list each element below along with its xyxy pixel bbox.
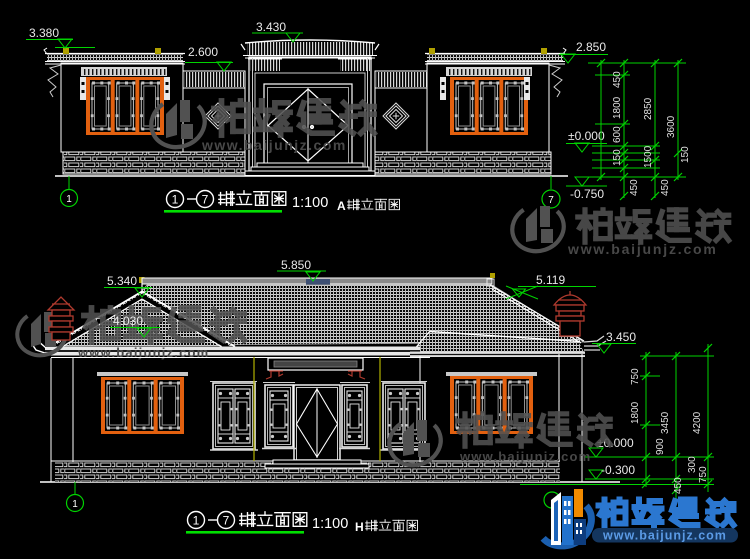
svg-text:7: 7	[223, 514, 230, 528]
svg-text:450: 450	[660, 179, 671, 196]
svg-text:900: 900	[655, 438, 666, 455]
svg-text:±0.000: ±0.000	[568, 129, 605, 143]
svg-text:1: 1	[66, 194, 72, 205]
svg-text:1500: 1500	[643, 145, 654, 168]
svg-text:150: 150	[612, 149, 623, 166]
svg-text:-0.300: -0.300	[601, 463, 635, 477]
svg-text:450: 450	[673, 477, 684, 494]
svg-text:4.030: 4.030	[113, 314, 143, 328]
svg-text:450: 450	[612, 71, 623, 88]
svg-text:600: 600	[612, 126, 623, 143]
svg-text:450: 450	[629, 179, 640, 196]
svg-text:7: 7	[202, 193, 209, 207]
svg-text:2.600: 2.600	[188, 45, 218, 59]
svg-text:2850: 2850	[643, 97, 654, 120]
svg-text:3.450: 3.450	[606, 330, 636, 344]
svg-text:www.baijunjz.com: www.baijunjz.com	[459, 449, 591, 464]
svg-text:www.baijunjz.com: www.baijunjz.com	[567, 241, 718, 257]
svg-text:5.119: 5.119	[536, 273, 565, 287]
svg-text:2.850: 2.850	[576, 40, 606, 54]
svg-text:1: 1	[172, 193, 179, 207]
svg-text:A: A	[337, 199, 346, 213]
svg-text:H: H	[355, 520, 364, 534]
svg-text:3450: 3450	[660, 411, 671, 434]
svg-text:4200: 4200	[692, 411, 703, 434]
svg-text:1800: 1800	[630, 401, 641, 424]
svg-text:5.850: 5.850	[281, 258, 311, 272]
svg-text:1:100: 1:100	[292, 195, 328, 211]
svg-text:300: 300	[687, 456, 698, 473]
svg-text:3.430: 3.430	[256, 20, 286, 34]
svg-text:150: 150	[680, 146, 691, 163]
svg-text:1: 1	[72, 499, 78, 510]
svg-text:7: 7	[548, 195, 554, 206]
svg-text:5.340: 5.340	[107, 274, 137, 288]
svg-text:1: 1	[193, 514, 200, 528]
svg-text:www.baijunjz.com: www.baijunjz.com	[602, 529, 727, 543]
svg-text:1:100: 1:100	[312, 516, 348, 532]
svg-text:1800: 1800	[612, 96, 623, 119]
svg-text:750: 750	[630, 368, 641, 385]
svg-text:3.380: 3.380	[29, 26, 59, 40]
svg-text:-0.750: -0.750	[570, 187, 604, 201]
svg-text:3600: 3600	[666, 115, 677, 138]
svg-text:www.baijunjz.com: www.baijunjz.com	[201, 137, 347, 153]
svg-text:750: 750	[698, 466, 709, 483]
